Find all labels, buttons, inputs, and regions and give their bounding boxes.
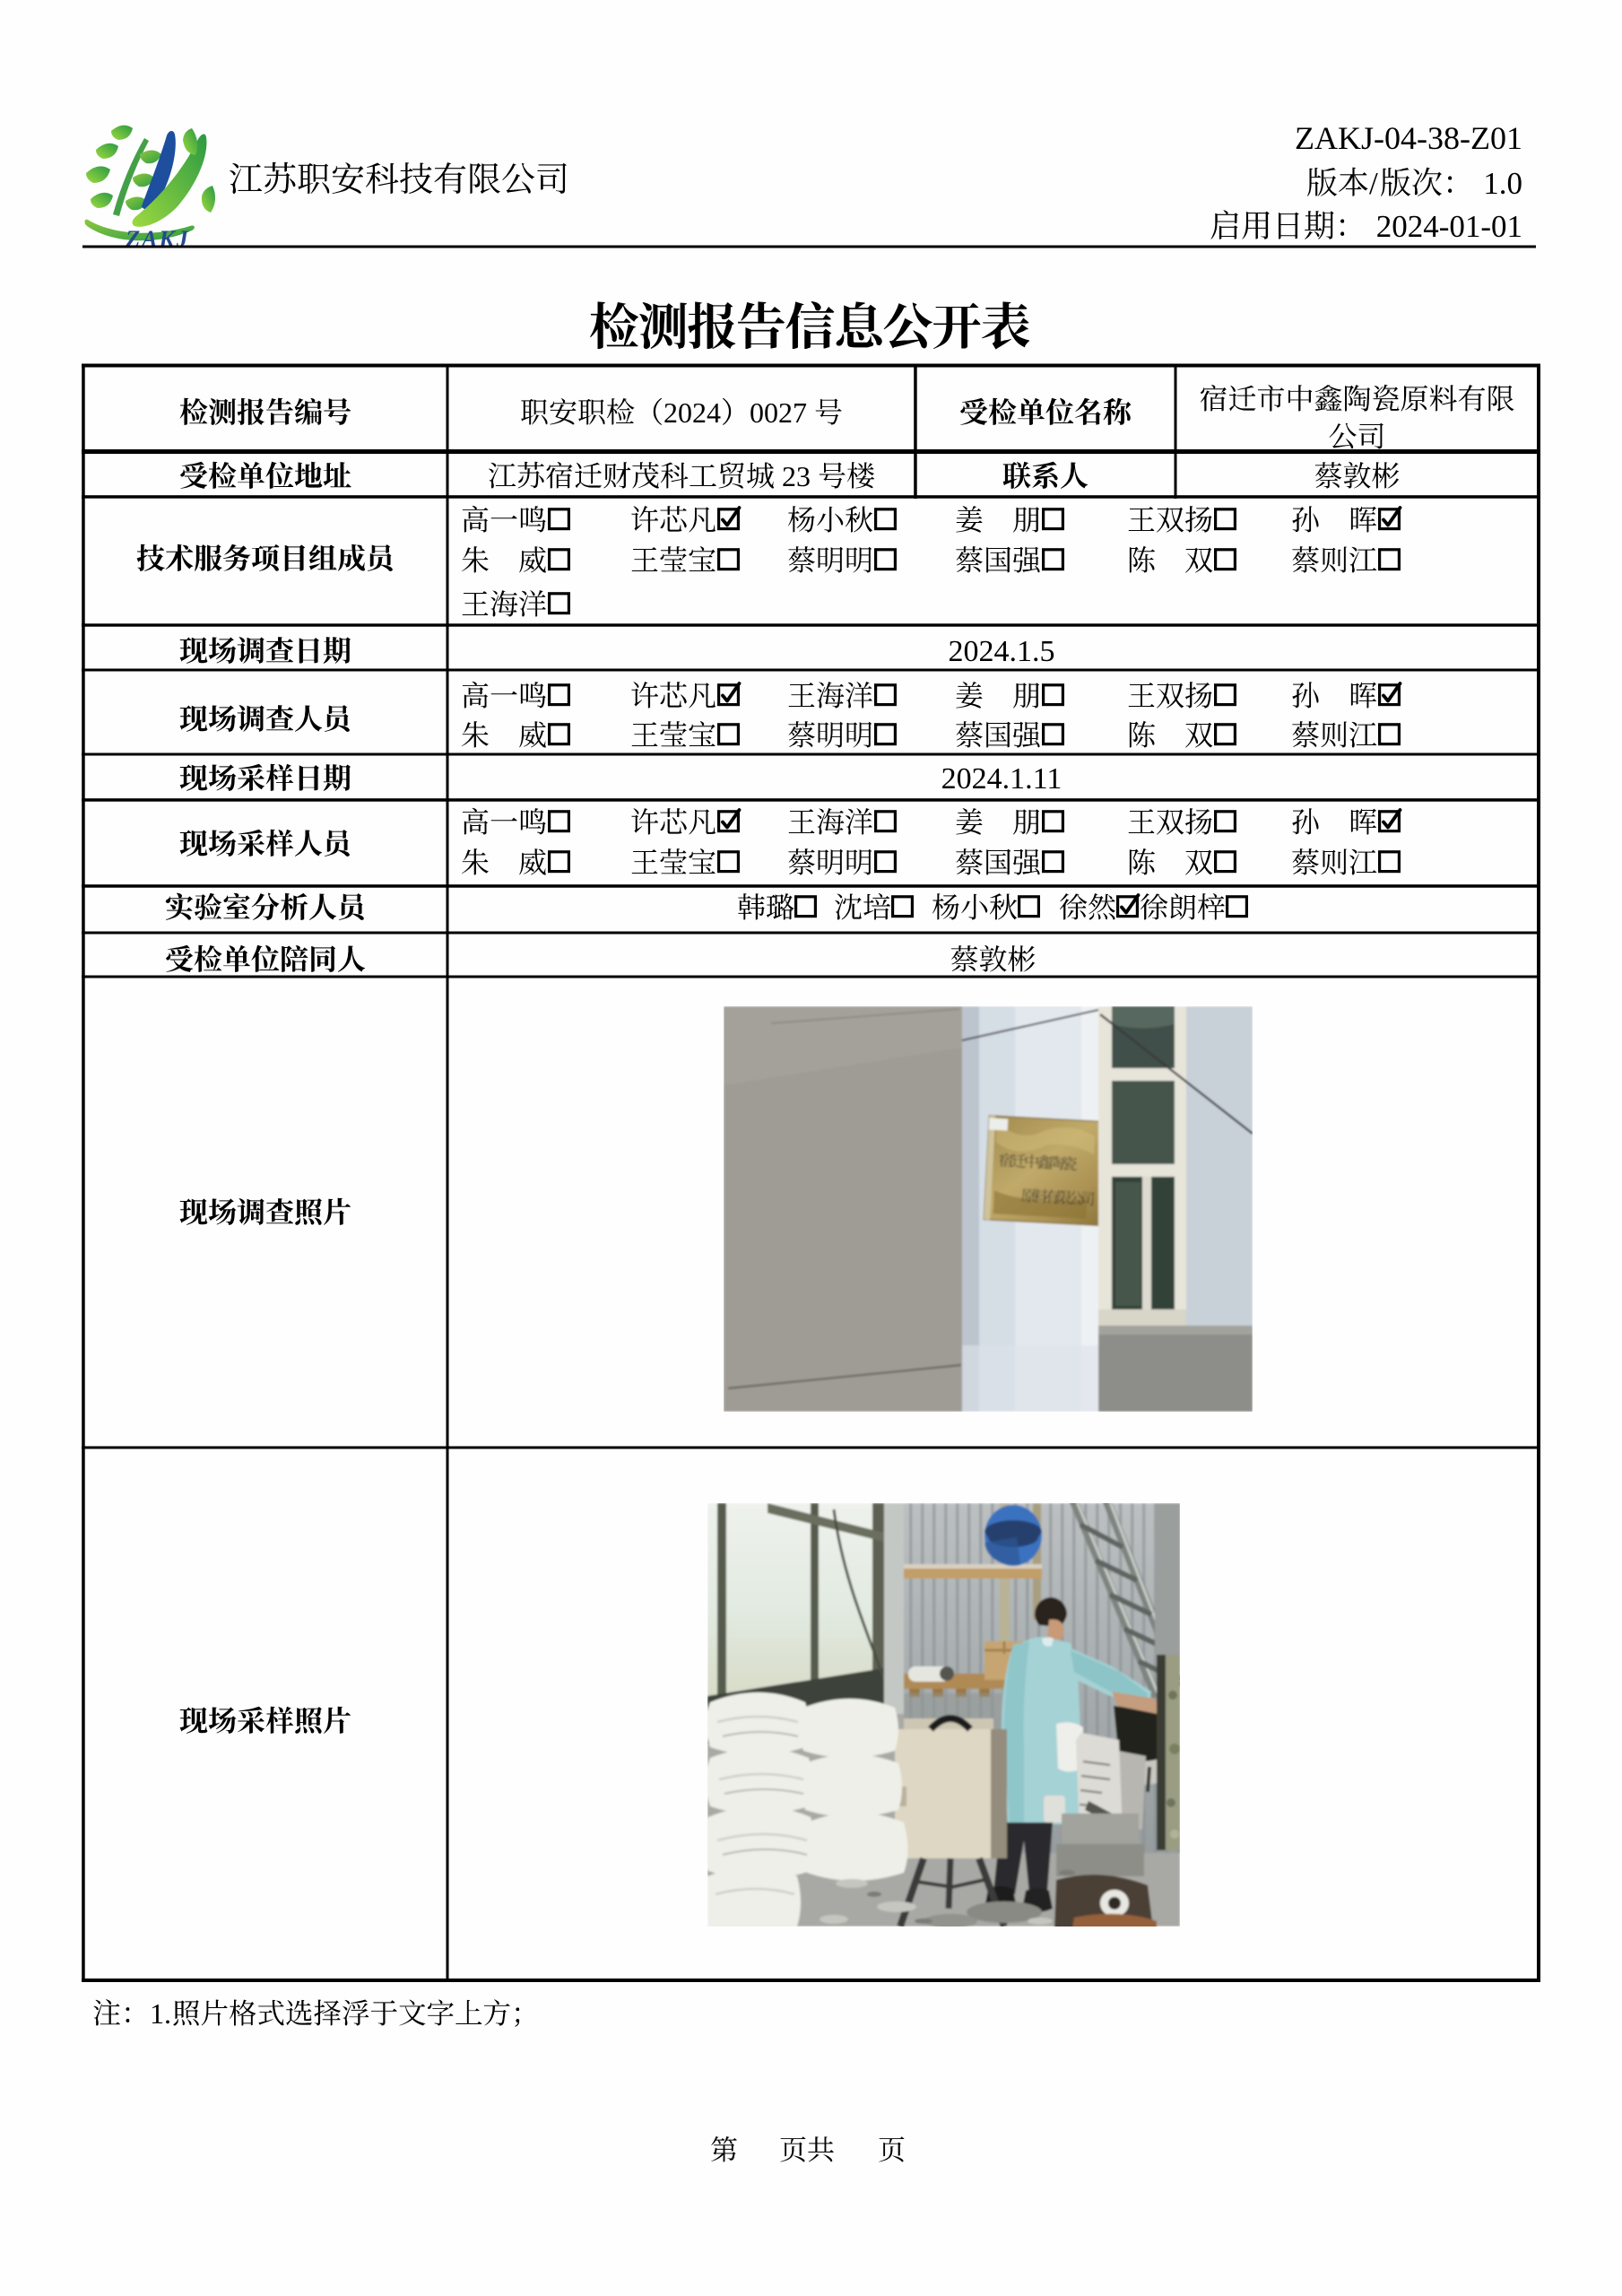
svg-text:ZAKJ: ZAKJ [125,226,190,252]
svg-text:23: 23 [782,460,811,492]
svg-text:0027: 0027 [750,396,807,429]
svg-text:2024.1.11: 2024.1.11 [941,762,1063,796]
svg-text:/: / [1369,166,1378,201]
svg-text:2024-01-01: 2024-01-01 [1376,209,1522,244]
svg-text:1.: 1. [150,1997,171,2030]
svg-text:2024.1.5: 2024.1.5 [949,635,1055,668]
svg-text:1.0: 1.0 [1483,166,1522,201]
svg-text:ZAKJ-04-38-Z01: ZAKJ-04-38-Z01 [1295,120,1522,156]
svg-text:2024: 2024 [664,396,721,429]
